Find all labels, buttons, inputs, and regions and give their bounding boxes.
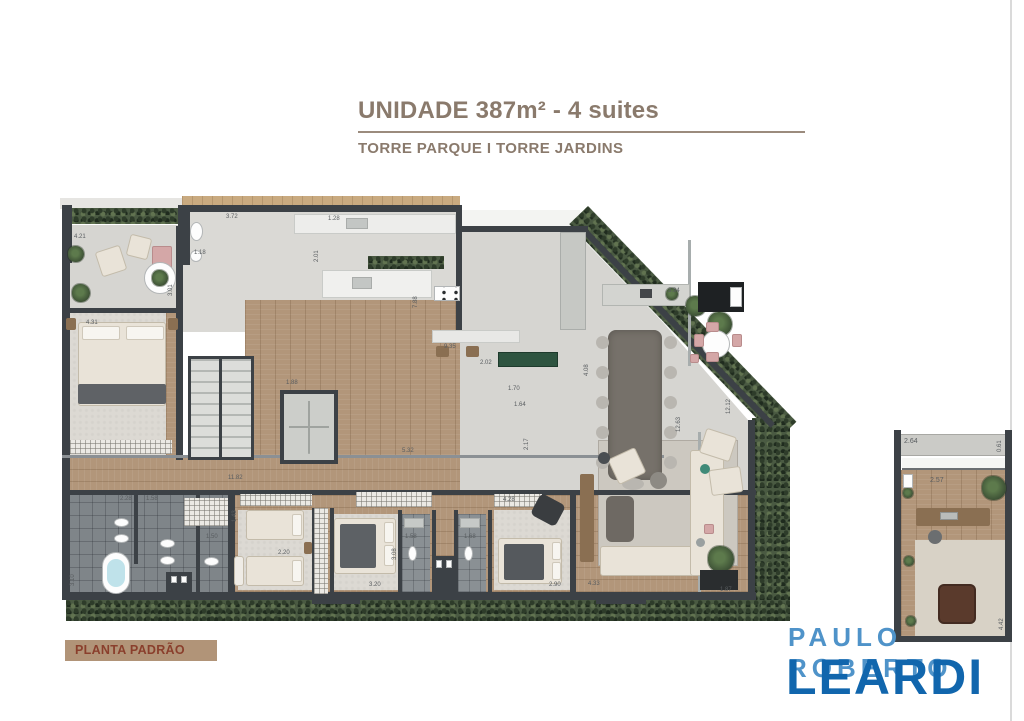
annex-wall-left — [894, 430, 901, 642]
terrace-plant-1 — [68, 246, 84, 262]
nightstand-1 — [66, 318, 76, 330]
dining-chair — [596, 336, 609, 349]
bath-b-sink — [460, 518, 480, 528]
wc-fixture-5 — [204, 557, 219, 566]
wall-right — [748, 420, 755, 598]
dim-label: 9.35 — [444, 344, 456, 350]
annex-panel — [903, 474, 913, 488]
grill-box — [700, 570, 738, 590]
wall-terrace-master — [62, 308, 180, 313]
twin-pillow-1 — [292, 514, 302, 536]
page-subtitle: TORRE PARQUE I TORRE JARDINS — [358, 140, 623, 157]
suite2-wardrobe — [240, 494, 312, 506]
shaft-vent-2 — [446, 560, 452, 568]
twin-pillow-2 — [292, 560, 302, 582]
dim-label: 1.58 — [405, 534, 417, 540]
fireplace-insert — [730, 287, 742, 307]
wardrobe-strip — [314, 508, 328, 594]
nook-chair-4 — [706, 352, 719, 362]
title-underline — [358, 131, 805, 133]
wall-bath-inner-1 — [134, 494, 138, 564]
dim-label: 2.02 — [480, 360, 492, 366]
wc-fixture-2 — [114, 534, 129, 543]
page-title: UNIDADE 387m² - 4 suites — [358, 97, 659, 125]
dim-label: 1.43 — [232, 510, 238, 522]
master-pillow-2 — [126, 326, 164, 340]
dim-label: 2.90 — [549, 582, 561, 588]
dim-label: 2.28 — [120, 496, 132, 502]
island-sink — [352, 277, 372, 289]
dim-label: 4.28 — [503, 497, 515, 503]
dim-label: 1.58 — [146, 496, 158, 502]
kitchen-island — [322, 270, 432, 298]
wall-corridor-top — [62, 455, 664, 458]
dim-label: 4.31 — [86, 320, 98, 326]
suite4-pillow-2 — [552, 562, 561, 580]
hedge-planter-kitchen — [368, 256, 444, 269]
dim-label: 3.72 — [226, 214, 238, 220]
living-stool — [598, 452, 610, 464]
wall-kitchen-dining — [456, 205, 462, 332]
dim-label: 3.20 — [369, 582, 381, 588]
nightstand-2 — [168, 318, 178, 330]
suite3-wardrobe — [356, 492, 432, 507]
dining-chair — [664, 366, 677, 379]
pink-pot — [704, 524, 714, 534]
wall-left — [62, 205, 70, 600]
elevator — [280, 390, 338, 464]
dining-chair — [664, 396, 677, 409]
dim-label: 3.01 — [168, 284, 174, 296]
annex-wall-right — [1005, 430, 1012, 642]
bath-a-sink — [404, 518, 424, 528]
suite4-duvet — [504, 544, 544, 580]
lounge-chair-2 — [708, 466, 743, 496]
bath-b-toilet — [464, 546, 473, 561]
dim-label: 2.01 — [314, 250, 320, 262]
master-bed-throw — [78, 384, 166, 404]
floorplan-page: UNIDADE 387m² - 4 suites TORRE PARQUE I … — [0, 0, 1024, 721]
plan-type-tag: PLANTA PADRÃO — [65, 640, 217, 661]
wall-top-entry — [182, 205, 462, 212]
kitchen-counter — [294, 214, 456, 234]
social-area-floor — [245, 300, 460, 460]
dim-label: 5.32 — [402, 448, 414, 454]
dim-label: 2.64 — [904, 438, 918, 445]
balcony-band — [460, 210, 580, 226]
wc-fixture-1 — [114, 518, 129, 527]
dim-label: 2.17 — [524, 438, 530, 450]
shaft-vent-3 — [171, 576, 177, 583]
tv-console — [580, 474, 594, 562]
dim-label: 0.61 — [997, 440, 1003, 452]
dining-chair — [664, 336, 677, 349]
green-marble-counter — [498, 352, 558, 367]
wall-suite4-right — [570, 492, 576, 594]
annex-plant-1 — [982, 476, 1006, 500]
nook-chair-2 — [732, 334, 742, 347]
dim-label: 2.57 — [930, 477, 944, 484]
suite3-duvet — [340, 524, 376, 568]
kitchen-sink — [346, 218, 368, 229]
annex-plant-3 — [904, 556, 914, 566]
terrace-plant-2 — [72, 284, 90, 302]
dim-label: 3.94 — [668, 288, 680, 294]
dim-label: 12.12 — [726, 399, 732, 414]
wall-bath-top — [62, 490, 232, 495]
annex-chair — [928, 530, 942, 544]
coffee-table — [606, 496, 634, 542]
bathtub-water — [107, 559, 125, 587]
twin-nightstand — [304, 542, 312, 554]
side-table — [650, 472, 667, 489]
closet-hatch — [184, 498, 228, 526]
wall-entry-vertical — [176, 226, 183, 460]
bar-stool-2 — [466, 346, 479, 357]
varanda-plant — [708, 546, 734, 572]
dim-label: 1.28 — [328, 216, 340, 222]
dim-label: 11.82 — [228, 475, 243, 481]
stove — [434, 286, 460, 301]
dim-label: 4.33 — [588, 581, 600, 587]
annex-monitor — [940, 512, 958, 520]
annex-rail — [902, 458, 1006, 470]
shaft-block-2 — [166, 572, 192, 596]
master-pillow-1 — [82, 326, 120, 340]
annex-armchair — [938, 584, 976, 624]
dim-label: 4.21 — [74, 234, 86, 240]
sideboard-decor — [640, 289, 652, 298]
teal-pot — [700, 464, 710, 474]
wc-fixture-3 — [160, 539, 175, 548]
nook-chair-1 — [694, 334, 704, 347]
door-mat-2 — [596, 594, 646, 604]
shaft-vent-1 — [436, 560, 442, 568]
dim-label: 1.70 — [508, 386, 520, 392]
dim-label: 1.64 — [514, 402, 526, 408]
dim-label: 1.88 — [286, 380, 298, 386]
dining-chair — [596, 366, 609, 379]
dim-label: 1.50 — [206, 534, 218, 540]
dim-label: 2.20 — [278, 550, 290, 556]
dim-label: 12.63 — [676, 417, 682, 432]
shaft-vent-4 — [181, 576, 187, 583]
suite2-bench — [234, 556, 244, 586]
hedge-top-left — [66, 208, 178, 224]
nook-pot — [690, 354, 699, 363]
nook-chair-3 — [706, 322, 719, 332]
hedge-right — [752, 418, 790, 600]
dining-chair — [596, 426, 609, 439]
dim-label: 1.18 — [194, 250, 206, 256]
dining-chair — [596, 396, 609, 409]
suite4-pillow-1 — [552, 542, 561, 560]
dim-label: 1.87 — [720, 587, 732, 593]
dining-chair — [664, 456, 677, 469]
bath-a-toilet — [408, 546, 417, 561]
dim-label: 3.10 — [70, 574, 76, 586]
wc-fixture-4 — [160, 556, 175, 565]
staircase-divider — [219, 356, 222, 460]
dim-label: 4.08 — [584, 364, 590, 376]
hedge-bottom — [66, 600, 790, 621]
annex-plant-2 — [903, 488, 913, 498]
master-wardrobe — [70, 440, 172, 454]
dim-label: 7.88 — [413, 296, 419, 308]
wall-bath-b-r — [488, 510, 492, 594]
wall-bath-a-l — [398, 510, 402, 594]
lavabo-toilet — [190, 222, 203, 241]
kitchen-tall-cabinets — [560, 232, 586, 330]
terrace-table-plant — [152, 270, 168, 286]
dim-label: 3.08 — [392, 548, 398, 560]
gray-pot — [696, 538, 705, 547]
bar-counter — [432, 330, 520, 343]
dim-label: 1.68 — [464, 534, 476, 540]
brand-logo: LEARDI — [786, 648, 984, 706]
suite3-pillow-1 — [384, 522, 394, 543]
